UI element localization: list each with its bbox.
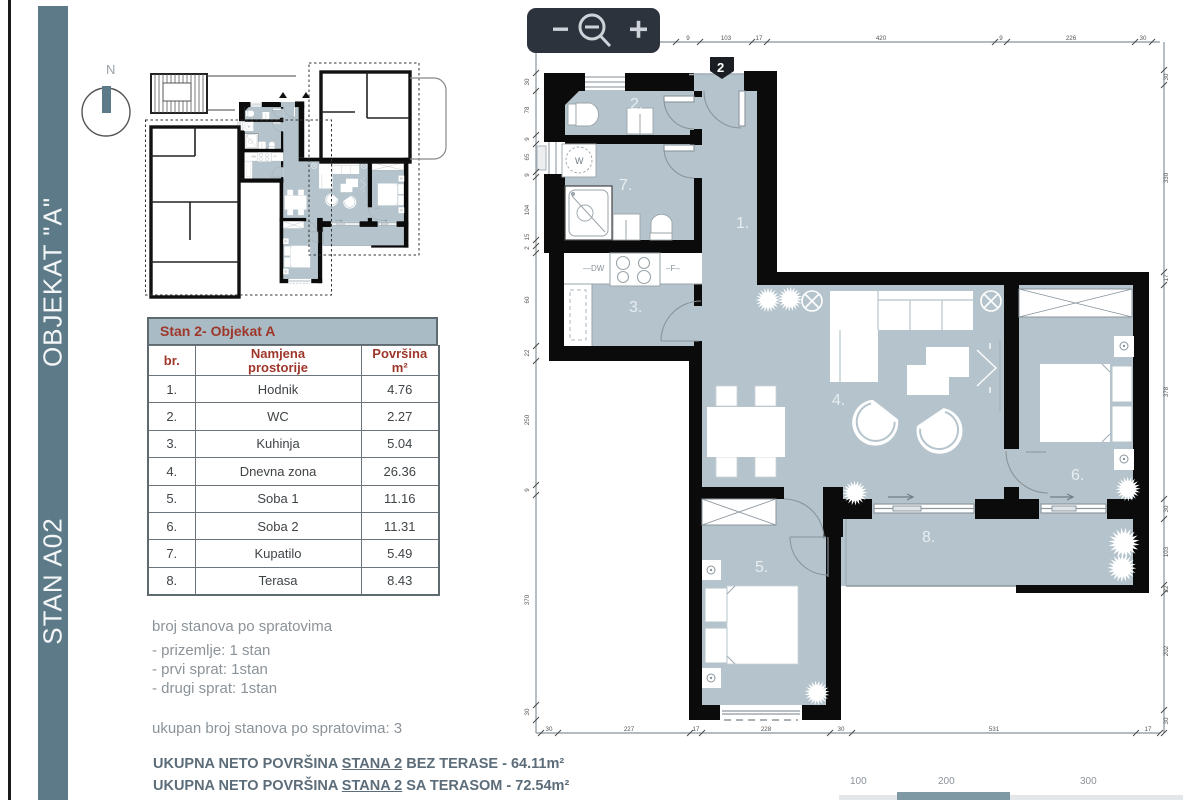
svg-text:30: 30	[524, 708, 531, 715]
svg-text:370: 370	[524, 594, 531, 605]
svg-text:3.: 3.	[629, 299, 642, 316]
svg-text:9: 9	[686, 35, 690, 42]
svg-text:227: 227	[624, 726, 635, 733]
svg-text:17: 17	[1145, 726, 1152, 733]
svg-text:9: 9	[524, 137, 531, 141]
svg-text:420: 420	[876, 35, 887, 42]
svg-text:78: 78	[524, 106, 531, 113]
svg-text:N: N	[106, 62, 115, 77]
svg-text:8.: 8.	[922, 529, 935, 546]
svg-text:202: 202	[1163, 645, 1170, 656]
svg-text:4.: 4.	[832, 392, 845, 409]
svg-text:330: 330	[1163, 172, 1170, 183]
svg-text:17: 17	[1163, 274, 1170, 281]
svg-text:1.: 1.	[736, 215, 749, 232]
svg-text:7.: 7.	[619, 177, 632, 194]
svg-text:30: 30	[546, 726, 553, 733]
svg-text:9: 9	[524, 488, 531, 492]
svg-text:2: 2	[524, 246, 531, 250]
svg-text:103: 103	[1163, 546, 1170, 557]
svg-text:65: 65	[524, 153, 531, 160]
svg-text:30: 30	[1163, 717, 1170, 724]
svg-text:30: 30	[524, 78, 531, 85]
svg-text:15: 15	[524, 233, 531, 240]
svg-text:5.: 5.	[755, 559, 768, 576]
svg-text:6.: 6.	[1071, 467, 1084, 484]
svg-text:30: 30	[1163, 505, 1170, 512]
svg-text:30: 30	[1163, 73, 1170, 80]
svg-text:228: 228	[761, 726, 772, 733]
svg-text:250: 250	[524, 414, 531, 425]
svg-text:226: 226	[1066, 35, 1077, 42]
svg-text:30: 30	[838, 726, 845, 733]
svg-text:22: 22	[524, 349, 531, 356]
svg-text:2: 2	[717, 60, 724, 75]
svg-text:60: 60	[524, 296, 531, 303]
svg-text:104: 104	[524, 204, 531, 215]
svg-text:9: 9	[524, 173, 531, 177]
svg-text:2.: 2.	[630, 96, 643, 113]
svg-text:22: 22	[1163, 585, 1170, 592]
svg-text:378: 378	[1163, 386, 1170, 397]
svg-text:–F–: –F–	[666, 264, 680, 273]
svg-text:17: 17	[693, 726, 700, 733]
svg-text:W: W	[575, 156, 584, 166]
svg-text:531: 531	[989, 726, 1000, 733]
svg-text:9: 9	[999, 35, 1003, 42]
svg-text:103: 103	[721, 35, 732, 42]
svg-text:17: 17	[756, 35, 763, 42]
svg-text:30: 30	[1140, 35, 1147, 42]
svg-text:—DW: —DW	[583, 264, 605, 273]
